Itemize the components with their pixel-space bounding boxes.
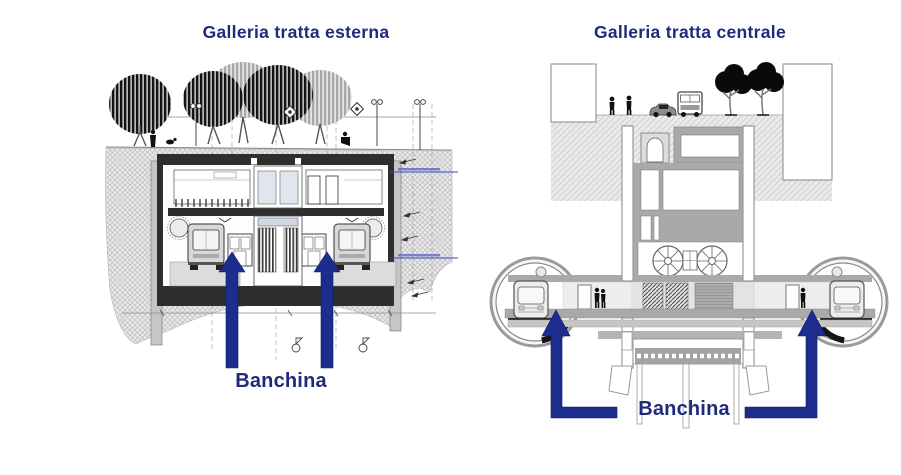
pedestrian-silhouettes — [150, 130, 350, 147]
banchina-arrow-right — [314, 252, 340, 368]
vent-duct-icon — [170, 219, 188, 237]
escalator-band — [695, 283, 733, 309]
wing-wall-right — [746, 366, 769, 395]
slide-canvas: Galleria tratta esterna Galleria tratta … — [0, 0, 901, 475]
drawing-galleria-esterna — [0, 0, 460, 475]
platform-door-left — [578, 285, 591, 309]
station-box — [160, 157, 396, 303]
bus-icon — [678, 92, 702, 117]
tree-silhouettes — [109, 62, 352, 146]
stair-core — [254, 216, 302, 286]
car-icon — [650, 104, 676, 117]
station-shaft — [633, 163, 746, 283]
banchina-label-esterna: Banchina — [226, 370, 336, 393]
wing-wall-left — [609, 366, 632, 395]
street-scene — [610, 62, 785, 117]
arch-niche — [647, 138, 663, 162]
fan-icon — [653, 246, 683, 276]
escalator-band — [643, 283, 663, 309]
fan-icon — [697, 246, 727, 276]
mezzanine-level — [174, 166, 382, 208]
surface-scene — [109, 62, 436, 150]
tree-silhouettes — [715, 62, 784, 115]
pedestrian-silhouettes — [610, 96, 632, 115]
building-left — [551, 64, 596, 122]
train-front-right — [334, 218, 370, 270]
escalator-band — [666, 283, 688, 309]
building-right — [783, 64, 832, 180]
banchina-label-centrale: Banchina — [628, 398, 740, 421]
platform-door-right — [786, 285, 799, 309]
platform-level — [168, 216, 397, 286]
